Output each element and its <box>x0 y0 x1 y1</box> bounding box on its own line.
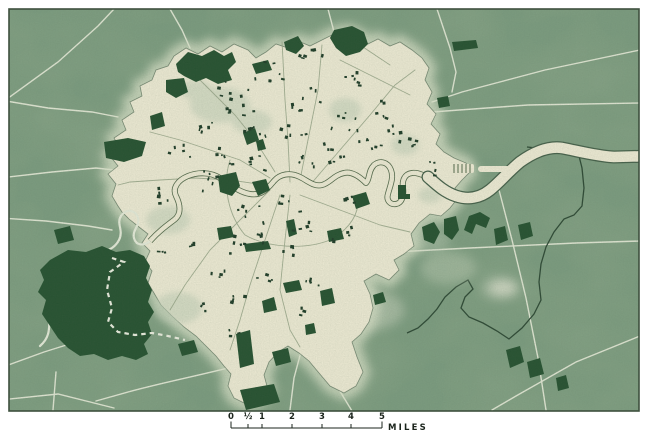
scale-tick-3: 3 <box>319 412 325 422</box>
map-plate <box>0 9 650 411</box>
scale-tick-2: 2 <box>289 412 295 422</box>
scale-tick-0: 0 <box>228 412 234 422</box>
scale-tick-half: ½ <box>244 411 253 422</box>
scale-tick-4: 4 <box>348 412 354 422</box>
map-page: 0 ½ 1 2 3 4 5 MILES <box>0 0 650 438</box>
scale-unit-label: MILES <box>388 423 428 433</box>
scale-tick-5: 5 <box>379 412 385 422</box>
scale-bar-line <box>231 422 382 429</box>
paper-grain-texture <box>9 9 639 411</box>
scale-bar: 0 ½ 1 2 3 4 5 MILES <box>228 411 428 433</box>
scale-tick-1: 1 <box>259 412 265 422</box>
london-map-canvas: 0 ½ 1 2 3 4 5 MILES <box>0 0 650 438</box>
